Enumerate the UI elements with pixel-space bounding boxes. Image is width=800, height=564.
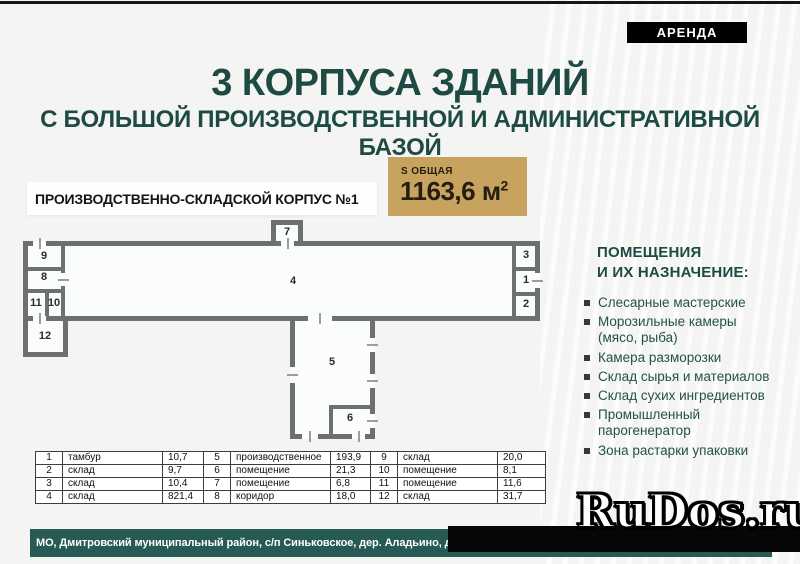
room-name-cell: помещение bbox=[231, 465, 331, 478]
room-name-cell: коридор bbox=[231, 491, 331, 504]
table-row: 8коридор18,0 bbox=[204, 491, 379, 504]
room-area-cell: 8,1 bbox=[498, 465, 546, 478]
rooms-purpose-legend: ПОМЕЩЕНИЯ И ИХ НАЗНАЧЕНИЕ: Слесарные мас… bbox=[583, 243, 798, 459]
room-label-2: 2 bbox=[515, 298, 537, 310]
room-name-cell: помещение bbox=[231, 478, 331, 491]
legend-item: Склад сырья и материалов bbox=[583, 369, 798, 385]
room-number-cell: 9 bbox=[371, 452, 398, 465]
legend-item: Слесарные мастерские bbox=[583, 295, 798, 311]
room-name-cell: тамбур bbox=[63, 452, 163, 465]
bullet-square-icon bbox=[584, 412, 590, 418]
room-name-cell: склад bbox=[63, 491, 163, 504]
legend-items: Слесарные мастерские Морозильные камеры … bbox=[583, 295, 798, 459]
room-label-11: 11 bbox=[25, 297, 47, 309]
room-label-4: 4 bbox=[282, 275, 304, 287]
legend-item: Промышленный парогенератор bbox=[583, 407, 798, 439]
room-number-cell: 7 bbox=[204, 478, 231, 491]
room-name-cell: склад bbox=[398, 491, 498, 504]
square-meter-sup: 2 bbox=[501, 177, 508, 193]
table-row: 7помещение6,8 bbox=[204, 478, 379, 491]
table-row: 9склад20,0 bbox=[371, 452, 546, 465]
room-number-cell: 6 bbox=[204, 465, 231, 478]
table-row: 4склад821,4 bbox=[36, 491, 211, 504]
room-label-6: 6 bbox=[339, 412, 361, 424]
room-area-cell: 20,0 bbox=[498, 452, 546, 465]
room-name-cell: помещение bbox=[398, 465, 498, 478]
rudos-watermark: RuDos.ru bbox=[576, 484, 800, 538]
room-label-1: 1 bbox=[515, 274, 537, 286]
door-opening bbox=[33, 316, 46, 321]
top-divider-line bbox=[0, 1, 800, 4]
interior-wall bbox=[329, 405, 333, 435]
door-opening bbox=[302, 434, 318, 439]
room-number-cell: 2 bbox=[36, 465, 63, 478]
table-row: 6помещение21,3 bbox=[204, 465, 379, 478]
table-row: 3склад10,4 bbox=[36, 478, 211, 491]
page-subtitle: С БОЛЬШОЙ ПРОИЗВОДСТВЕННОЙ И АДМИНИСТРАТ… bbox=[0, 106, 800, 162]
legend-title-line1: ПОМЕЩЕНИЯ bbox=[597, 243, 798, 263]
bullet-square-icon bbox=[584, 355, 590, 361]
room-number-cell: 8 bbox=[204, 491, 231, 504]
room-number-cell: 11 bbox=[371, 478, 398, 491]
legend-item-text: Зона растарки упаковки bbox=[598, 443, 774, 459]
legend-item-text: Камера разморозки bbox=[598, 350, 774, 366]
room-name-cell: помещение bbox=[398, 478, 498, 491]
room-label-5: 5 bbox=[321, 356, 343, 368]
legend-title: ПОМЕЩЕНИЯ И ИХ НАЗНАЧЕНИЕ: bbox=[583, 243, 798, 282]
legend-item-text: Слесарные мастерские bbox=[598, 295, 774, 311]
legend-item-text: Морозильные камеры (мясо, рыба) bbox=[598, 314, 774, 346]
door-opening bbox=[370, 414, 375, 428]
table-row: 10помещение8,1 bbox=[371, 465, 546, 478]
area-table-rooms-9-12: 9склад20,0 10помещение8,1 11помещение11,… bbox=[370, 451, 546, 504]
room-label-12: 12 bbox=[34, 330, 56, 342]
rental-flyer: АРЕНДА 3 КОРПУСА ЗДАНИЙ С БОЛЬШОЙ ПРОИЗВ… bbox=[0, 0, 800, 564]
legend-item: Склад сухих ингредиентов bbox=[583, 388, 798, 404]
table-row: 12склад31,7 bbox=[371, 491, 546, 504]
room-label-3: 3 bbox=[515, 249, 537, 261]
legend-item: Камера разморозки bbox=[583, 350, 798, 366]
legend-item-text: Промышленный парогенератор bbox=[598, 407, 774, 439]
room-label-7: 7 bbox=[276, 226, 298, 238]
room-number-cell: 5 bbox=[204, 452, 231, 465]
legend-item-text: Склад сухих ингредиентов bbox=[598, 388, 774, 404]
room-label-9: 9 bbox=[33, 250, 55, 262]
room-label-8: 8 bbox=[33, 271, 55, 283]
total-area-value: 1163,6 м2 bbox=[400, 178, 527, 204]
legend-item: Морозильные камеры (мясо, рыба) bbox=[583, 314, 798, 346]
room-name-cell: склад bbox=[398, 452, 498, 465]
door-opening bbox=[308, 316, 332, 321]
door-opening bbox=[370, 338, 375, 352]
bullet-square-icon bbox=[584, 319, 590, 325]
room-name-cell: производственное bbox=[231, 452, 331, 465]
table-row: 11помещение11,6 bbox=[371, 478, 546, 491]
room-number-cell: 4 bbox=[36, 491, 63, 504]
room-name-cell: склад bbox=[63, 465, 163, 478]
legend-item: Зона растарки упаковки bbox=[583, 443, 798, 459]
address-text: МО, Дмитровский муниципальный район, с/п… bbox=[30, 537, 466, 549]
legend-item-text: Склад сырья и материалов bbox=[598, 369, 774, 385]
bullet-square-icon bbox=[584, 300, 590, 306]
room-number-cell: 1 bbox=[36, 452, 63, 465]
interior-wall bbox=[512, 267, 536, 271]
door-opening bbox=[352, 434, 365, 439]
bullet-square-icon bbox=[584, 393, 590, 399]
bullet-square-icon bbox=[584, 374, 590, 380]
room-number-cell: 3 bbox=[36, 478, 63, 491]
room-area-cell: 11,6 bbox=[498, 478, 546, 491]
door-opening bbox=[33, 241, 46, 246]
room-number-cell: 10 bbox=[371, 465, 398, 478]
rent-badge: АРЕНДА bbox=[627, 22, 747, 43]
table-row: 1тамбур10,7 bbox=[36, 452, 211, 465]
room-name-cell: склад bbox=[63, 478, 163, 491]
total-area-badge: S ОБЩАЯ 1163,6 м2 bbox=[388, 157, 527, 216]
door-opening bbox=[281, 241, 294, 246]
table-row: 5производственное193,9 bbox=[204, 452, 379, 465]
building-name-bar: ПРОИЗВОДСТВЕННО-СКЛАДСКОЙ КОРПУС №1 bbox=[27, 182, 377, 215]
bullet-square-icon bbox=[584, 448, 590, 454]
legend-title-line2: И ИХ НАЗНАЧЕНИЕ: bbox=[597, 263, 798, 283]
door-opening bbox=[61, 273, 65, 286]
interior-wall bbox=[329, 405, 371, 409]
building-name: ПРОИЗВОДСТВЕННО-СКЛАДСКОЙ КОРПУС №1 bbox=[27, 191, 358, 207]
area-table-rooms-5-8: 5производственное193,9 6помещение21,3 7п… bbox=[203, 451, 379, 504]
table-row: 2склад9,7 bbox=[36, 465, 211, 478]
door-opening bbox=[370, 374, 375, 388]
interior-wall bbox=[512, 292, 536, 296]
door-opening bbox=[290, 367, 295, 383]
area-table-rooms-1-4: 1тамбур10,7 2склад9,7 3склад10,4 4склад8… bbox=[35, 451, 211, 504]
page-title: 3 КОРПУСА ЗДАНИЙ bbox=[0, 62, 800, 105]
room-number-cell: 12 bbox=[371, 491, 398, 504]
room-area-cell: 31,7 bbox=[498, 491, 546, 504]
